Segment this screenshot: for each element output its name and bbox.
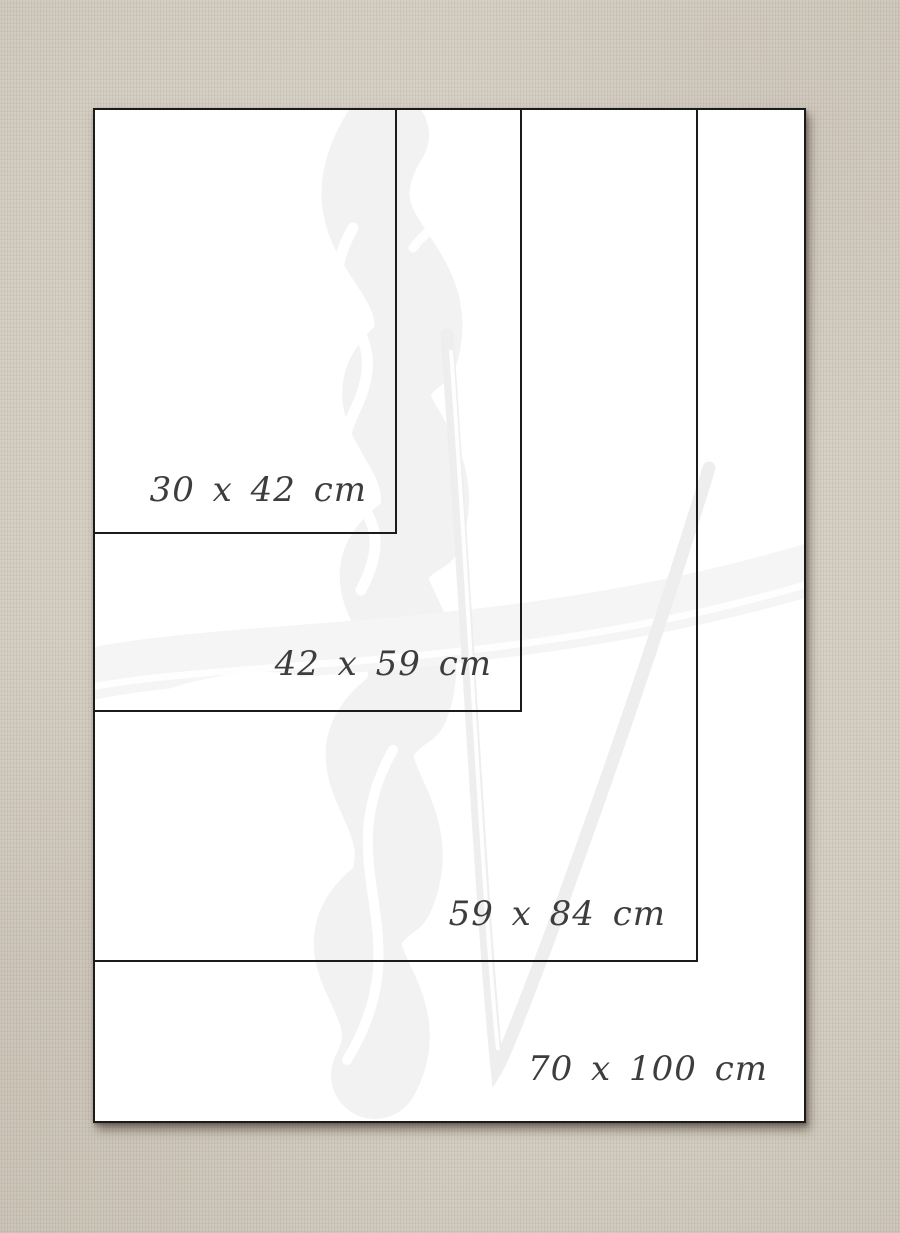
size-label-59x84: 59 x 84 cm xyxy=(449,894,666,934)
paper-sheet-70x100: 30 x 42 cm 42 x 59 cm 59 x 84 cm 70 x 10… xyxy=(93,108,806,1123)
size-label-70x100: 70 x 100 cm xyxy=(528,1049,768,1089)
poster-size-diagram: 30 x 42 cm 42 x 59 cm 59 x 84 cm 70 x 10… xyxy=(0,0,900,1233)
size-rect-59x84: 59 x 84 cm xyxy=(95,110,698,962)
